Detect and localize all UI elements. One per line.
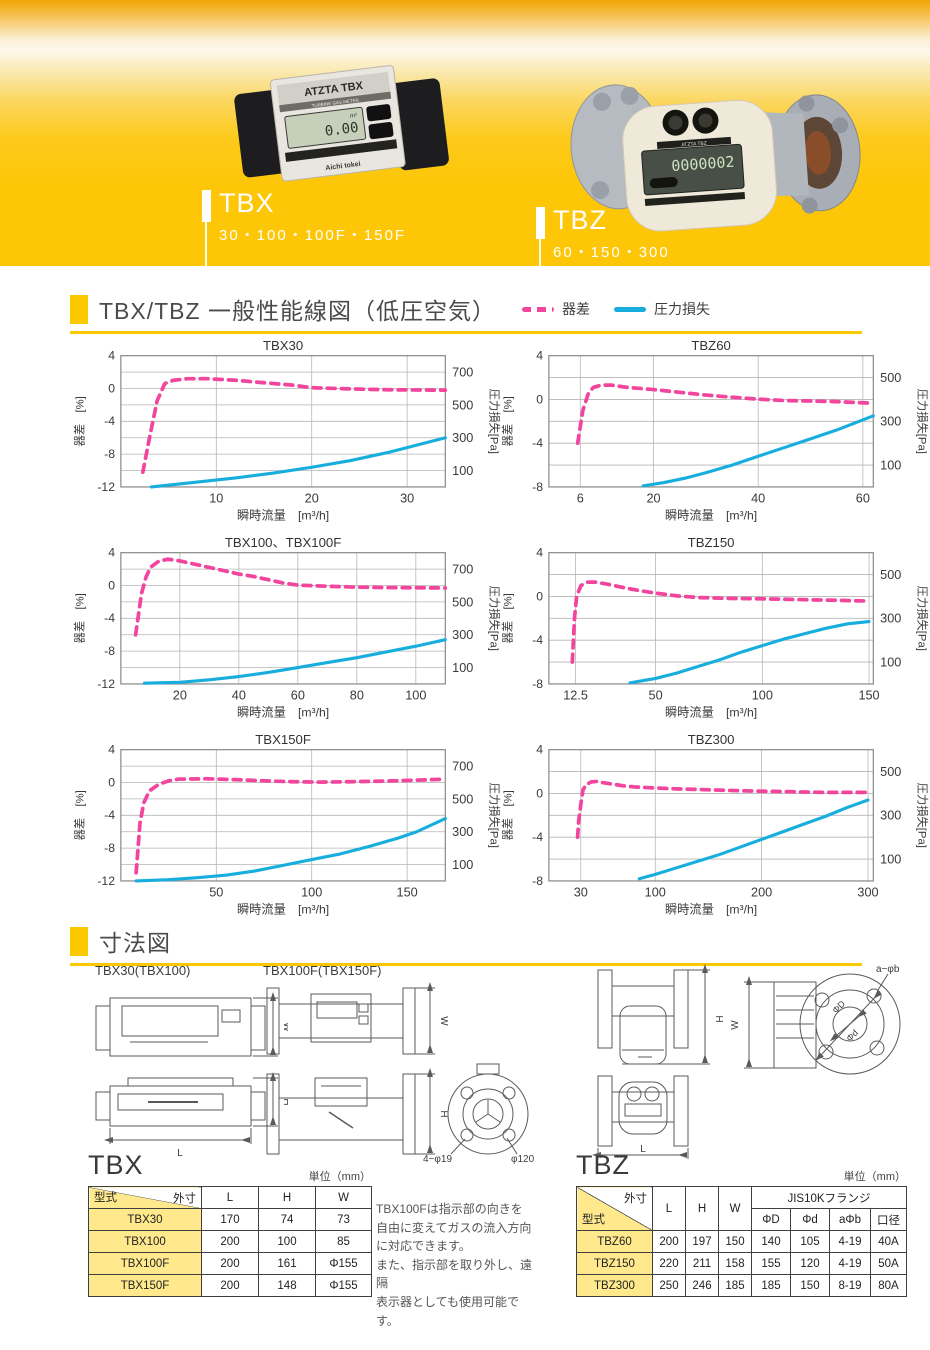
svg-text:100: 100: [880, 654, 901, 669]
model-cell: TBZ60: [577, 1231, 653, 1253]
value-cell: 211: [686, 1253, 719, 1275]
svg-text:-12: -12: [97, 480, 115, 494]
x-axis-label: 瞬時流量 [m³/h]: [665, 508, 757, 522]
series-error: [572, 582, 869, 662]
y-axis-left-label: 器差 [%]: [501, 593, 515, 643]
model-cell: TBX30: [89, 1209, 202, 1231]
tbx-table: 外寸 型式 L H W TBX301707473TBX10020010085TB…: [88, 1186, 372, 1297]
solid-line-swatch-icon: [614, 307, 646, 312]
dim-phi120-label: φ120: [511, 1154, 535, 1165]
svg-text:-8: -8: [104, 841, 115, 855]
product-label-tbz: TBZ 60・150・300: [553, 207, 670, 262]
svg-text:80: 80: [350, 688, 364, 703]
chart-svg: 40-4-850030010030100200300TBZ300瞬時流量 [m³…: [500, 734, 930, 926]
svg-text:500: 500: [452, 397, 473, 412]
svg-text:150: 150: [858, 688, 879, 703]
value-cell: 250: [653, 1275, 686, 1297]
model-cell: TBZ150: [577, 1253, 653, 1275]
svg-text:20: 20: [646, 491, 660, 506]
svg-text:100: 100: [452, 660, 473, 675]
table-row: TBZ602001971501401054-1940A: [577, 1231, 907, 1253]
y-axis-right-label: 圧力損失[Pa]: [915, 783, 929, 848]
svg-text:20: 20: [305, 491, 319, 506]
svg-text:4: 4: [536, 349, 543, 363]
x-axis-label: 瞬時流量 [m³/h]: [237, 508, 329, 522]
svg-text:-12: -12: [97, 874, 115, 888]
tbx-col-w: W: [316, 1187, 372, 1209]
dashed-line-swatch-icon: [522, 307, 554, 312]
chart-title: TBZ150: [688, 537, 735, 550]
tbz-table-body: TBZ602001971501401054-1940ATBZ1502202111…: [577, 1231, 907, 1297]
tbx-col-l: L: [202, 1187, 259, 1209]
value-cell: 200: [653, 1231, 686, 1253]
svg-text:500: 500: [880, 370, 901, 385]
svg-text:-8: -8: [532, 480, 543, 494]
value-cell: 170: [202, 1209, 259, 1231]
tbz-col-l: L: [653, 1187, 686, 1231]
svg-text:-8: -8: [104, 644, 115, 658]
tbx-note: TBX100Fは指示部の向きを 自由に変えてガスの流入方向 に対応できます。 ま…: [376, 1200, 536, 1330]
dimensions-section-header: 寸法図: [70, 924, 862, 966]
tbz-code: TBZ: [553, 207, 670, 234]
value-cell: 80A: [871, 1275, 907, 1297]
value-cell: 74: [259, 1209, 316, 1231]
value-cell: 161: [259, 1253, 316, 1275]
svg-text:60: 60: [291, 688, 305, 703]
table-row: TBZ3002502461851851508-1980A: [577, 1275, 907, 1297]
x-axis-label: 瞬時流量 [m³/h]: [237, 705, 329, 719]
tbx-corner-cell: 外寸 型式: [89, 1187, 202, 1209]
svg-text:-12: -12: [97, 677, 115, 691]
tbz-col-phid: Φd: [791, 1209, 830, 1231]
chart-tbz60: 40-4-85003001006204060TBZ60瞬時流量 [m³/h]器差…: [500, 340, 930, 532]
tbz-col-h: H: [686, 1187, 719, 1231]
tbz-table-unit: 単位（mm）: [576, 1168, 906, 1184]
value-cell: 40A: [871, 1231, 907, 1253]
svg-text:700: 700: [452, 364, 473, 379]
chart-title: TBX150F: [255, 734, 311, 747]
value-cell: 105: [791, 1231, 830, 1253]
svg-text:4: 4: [108, 349, 115, 363]
value-cell: 200: [202, 1253, 259, 1275]
series-error: [578, 385, 874, 443]
tbz-col-phiD: ΦD: [752, 1209, 791, 1231]
svg-text:40: 40: [232, 688, 246, 703]
svg-text:100: 100: [301, 885, 322, 900]
dim-h-label: H: [713, 1015, 724, 1022]
tbz-table: 外寸 型式 L H W JIS10Kフランジ ΦD Φd aΦb 口径 TBZ6…: [576, 1186, 907, 1297]
svg-text:300: 300: [880, 611, 901, 626]
banner: ATZTA TBX TURBINE GAS METER 0.00 m³ Aich…: [0, 0, 930, 266]
svg-text:4: 4: [108, 743, 115, 757]
svg-text:500: 500: [452, 594, 473, 609]
dim-phiD-label: ΦD: [830, 998, 847, 1015]
series-pressure-loss: [630, 622, 869, 683]
svg-text:-4: -4: [104, 611, 115, 625]
product-photo-tbx: ATZTA TBX TURBINE GAS METER 0.00 m³ Aich…: [226, 50, 454, 200]
value-cell: 150: [719, 1231, 752, 1253]
table-row: TBX10020010085: [89, 1231, 372, 1253]
y-axis-left-label: 器差 [%]: [501, 396, 515, 446]
svg-text:-4: -4: [104, 808, 115, 822]
corner-bottom-label: 型式: [582, 1211, 605, 1227]
svg-text:0: 0: [108, 381, 115, 395]
svg-text:50: 50: [209, 885, 223, 900]
svg-text:300: 300: [452, 627, 473, 642]
tbx-code: TBX: [219, 190, 406, 217]
y-axis-left-label: 器差 [%]: [73, 593, 87, 643]
tbz-flange-group: JIS10Kフランジ: [752, 1187, 907, 1209]
value-cell: 150: [791, 1275, 830, 1297]
value-cell: 73: [316, 1209, 372, 1231]
svg-text:100: 100: [452, 857, 473, 872]
svg-text:100: 100: [752, 688, 773, 703]
drawing-tbz: H L W ΦD Φd a−φb: [578, 962, 908, 1162]
chart-svg: 40-4-8-1270050030010020406080100TBX100、T…: [72, 537, 502, 729]
svg-text:700: 700: [452, 758, 473, 773]
svg-text:4: 4: [536, 743, 543, 757]
tbx-lcd-unit: m³: [350, 113, 358, 120]
yellow-square-icon: [70, 295, 88, 324]
value-cell: 155: [752, 1253, 791, 1275]
svg-text:30: 30: [574, 885, 588, 900]
value-cell: 4-19: [830, 1253, 871, 1275]
drawing-label-tbx30: TBX30(TBX100): [95, 963, 190, 978]
value-cell: 197: [686, 1231, 719, 1253]
table-row: TBX150F200148Φ155: [89, 1275, 372, 1297]
value-cell: 246: [686, 1275, 719, 1297]
svg-text:300: 300: [880, 808, 901, 823]
dim-4phi19-label: 4−φ19: [423, 1154, 452, 1165]
chart-title: TBZ300: [688, 734, 735, 747]
tbz-sizes: 60・150・300: [553, 241, 670, 262]
dim-l-label: L: [177, 1148, 183, 1159]
svg-text:50: 50: [649, 688, 663, 703]
svg-text:-8: -8: [532, 677, 543, 691]
table-row: TBX301707473: [89, 1209, 372, 1231]
chart-tbz300: 40-4-850030010030100200300TBZ300瞬時流量 [m³…: [500, 734, 930, 926]
catalog-page: ATZTA TBX TURBINE GAS METER 0.00 m³ Aich…: [0, 0, 930, 1350]
value-cell: 200: [202, 1275, 259, 1297]
svg-text:-4: -4: [532, 436, 543, 450]
series-error: [136, 559, 446, 635]
value-cell: 120: [791, 1253, 830, 1275]
svg-text:0: 0: [108, 578, 115, 592]
chart-title: TBX100、TBX100F: [225, 537, 341, 550]
value-cell: 185: [752, 1275, 791, 1297]
svg-text:100: 100: [880, 851, 901, 866]
drawing-label-tbx100f: TBX100F(TBX150F): [263, 963, 382, 978]
series-pressure-loss: [639, 800, 868, 879]
value-cell: 8-19: [830, 1275, 871, 1297]
svg-text:200: 200: [751, 885, 772, 900]
svg-text:0: 0: [536, 786, 543, 800]
svg-text:-4: -4: [532, 633, 543, 647]
corner-bottom-label: 型式: [94, 1189, 117, 1205]
dim-h-label: H: [438, 1110, 449, 1117]
series-pressure-loss: [144, 640, 445, 683]
svg-text:100: 100: [405, 688, 426, 703]
svg-text:10: 10: [209, 491, 223, 506]
chart-tbx30: 40-4-8-12700500300100102030TBX30瞬時流量 [m³…: [72, 340, 502, 532]
tbz-corner-cell: 外寸 型式: [577, 1187, 653, 1231]
svg-text:30: 30: [400, 491, 414, 506]
legend-label-pressure: 圧力損失: [654, 299, 710, 319]
chart-svg: 40-4-8-1270050030010050100150TBX150F瞬時流量…: [72, 734, 502, 926]
legend-item-pressure: 圧力損失: [614, 299, 710, 319]
svg-text:60: 60: [856, 491, 870, 506]
chart-tbx100: 40-4-8-1270050030010020406080100TBX100、T…: [72, 537, 502, 729]
value-cell: 4-19: [830, 1231, 871, 1253]
svg-text:300: 300: [452, 430, 473, 445]
x-axis-label: 瞬時流量 [m³/h]: [665, 705, 757, 719]
y-axis-left-label: 器差 [%]: [501, 790, 515, 840]
svg-text:300: 300: [880, 414, 901, 429]
tbx-table-unit: 単位（mm）: [88, 1168, 371, 1184]
y-axis-right-label: 圧力損失[Pa]: [915, 586, 929, 651]
svg-text:4: 4: [536, 546, 543, 560]
model-cell: TBZ300: [577, 1275, 653, 1297]
value-cell: 185: [719, 1275, 752, 1297]
svg-text:-8: -8: [532, 874, 543, 888]
legend-label-error: 器差: [562, 299, 590, 319]
table-row: TBZ1502202111581551204-1950A: [577, 1253, 907, 1275]
tbz-col-aphib: aΦb: [830, 1209, 871, 1231]
series-error: [578, 781, 868, 837]
value-cell: 158: [719, 1253, 752, 1275]
chart-title: TBZ60: [691, 340, 731, 353]
svg-text:0: 0: [536, 392, 543, 406]
tbx-table-body: TBX301707473TBX10020010085TBX100F200161Φ…: [89, 1209, 372, 1297]
performance-section-header: TBX/TBZ 一般性能線図（低圧空気） 器差 圧力損失: [70, 292, 862, 334]
svg-text:300: 300: [452, 824, 473, 839]
svg-text:-4: -4: [104, 414, 115, 428]
chart-svg: 40-4-850030010012.550100150TBZ150瞬時流量 [m…: [500, 537, 930, 729]
tbx-sizes: 30・100・100F・150F: [219, 224, 406, 245]
tbx-col-h: H: [259, 1187, 316, 1209]
x-axis-label: 瞬時流量 [m³/h]: [665, 902, 757, 916]
value-cell: 148: [259, 1275, 316, 1297]
svg-text:12.5: 12.5: [563, 688, 588, 703]
legend-item-error: 器差: [522, 299, 590, 319]
tbz-label-marker: [536, 207, 545, 239]
x-axis-label: 瞬時流量 [m³/h]: [237, 902, 329, 916]
chart-svg: 40-4-85003001006204060TBZ60瞬時流量 [m³/h]器差…: [500, 340, 930, 532]
svg-text:4: 4: [108, 546, 115, 560]
corner-top-label: 外寸: [173, 1190, 196, 1206]
svg-text:300: 300: [857, 885, 878, 900]
table-row: TBX100F200161Φ155: [89, 1253, 372, 1275]
dimensions-title: 寸法図: [99, 924, 171, 958]
value-cell: 100: [259, 1231, 316, 1253]
chart-svg: 40-4-8-12700500300100102030TBX30瞬時流量 [m³…: [72, 340, 502, 532]
value-cell: 85: [316, 1231, 372, 1253]
svg-text:500: 500: [880, 764, 901, 779]
drawing-tbx100f: W H 4−φ19 φ120: [255, 982, 545, 1167]
svg-text:0: 0: [108, 775, 115, 789]
dim-l-label: L: [640, 1144, 646, 1155]
tbx-photo-art: ATZTA TBX TURBINE GAS METER 0.00 m³ Aich…: [226, 50, 454, 200]
value-cell: 140: [752, 1231, 791, 1253]
svg-text:150: 150: [397, 885, 418, 900]
dim-w-label: W: [730, 1020, 741, 1030]
svg-text:500: 500: [452, 791, 473, 806]
svg-text:40: 40: [751, 491, 765, 506]
tbz-col-bore: 口径: [871, 1209, 907, 1231]
svg-text:700: 700: [452, 561, 473, 576]
series-error: [136, 779, 445, 873]
model-cell: TBX150F: [89, 1275, 202, 1297]
series-pressure-loss: [136, 819, 445, 881]
value-cell: 220: [653, 1253, 686, 1275]
svg-text:500: 500: [880, 567, 901, 582]
svg-text:6: 6: [577, 491, 584, 506]
dim-aphib-label: a−φb: [876, 964, 900, 975]
performance-title: TBX/TBZ 一般性能線図（低圧空気）: [99, 292, 496, 326]
yellow-square-icon: [70, 927, 88, 956]
chart-tbz150: 40-4-850030010012.550100150TBZ150瞬時流量 [m…: [500, 537, 930, 729]
model-cell: TBX100: [89, 1231, 202, 1253]
corner-top-label: 外寸: [624, 1190, 647, 1206]
chart-legend: 器差 圧力損失: [522, 299, 724, 319]
series-pressure-loss: [151, 438, 445, 487]
svg-text:20: 20: [173, 688, 187, 703]
y-axis-left-label: 器差 [%]: [73, 396, 87, 446]
dim-w-label: W: [438, 1016, 449, 1026]
tbx-label-marker: [202, 190, 211, 222]
svg-text:100: 100: [645, 885, 666, 900]
chart-title: TBX30: [263, 340, 303, 353]
value-cell: 50A: [871, 1253, 907, 1275]
svg-text:100: 100: [880, 457, 901, 472]
svg-text:100: 100: [452, 463, 473, 478]
svg-text:-8: -8: [104, 447, 115, 461]
value-cell: 200: [202, 1231, 259, 1253]
value-cell: Φ155: [316, 1275, 372, 1297]
tbz-col-w: W: [719, 1187, 752, 1231]
chart-tbx150f: 40-4-8-1270050030010050100150TBX150F瞬時流量…: [72, 734, 502, 926]
product-label-tbx: TBX 30・100・100F・150F: [219, 190, 406, 245]
svg-text:0: 0: [536, 589, 543, 603]
series-error: [143, 379, 445, 472]
y-axis-left-label: 器差 [%]: [73, 790, 87, 840]
model-cell: TBX100F: [89, 1253, 202, 1275]
value-cell: Φ155: [316, 1253, 372, 1275]
svg-text:-4: -4: [532, 830, 543, 844]
y-axis-right-label: 圧力損失[Pa]: [915, 389, 929, 454]
